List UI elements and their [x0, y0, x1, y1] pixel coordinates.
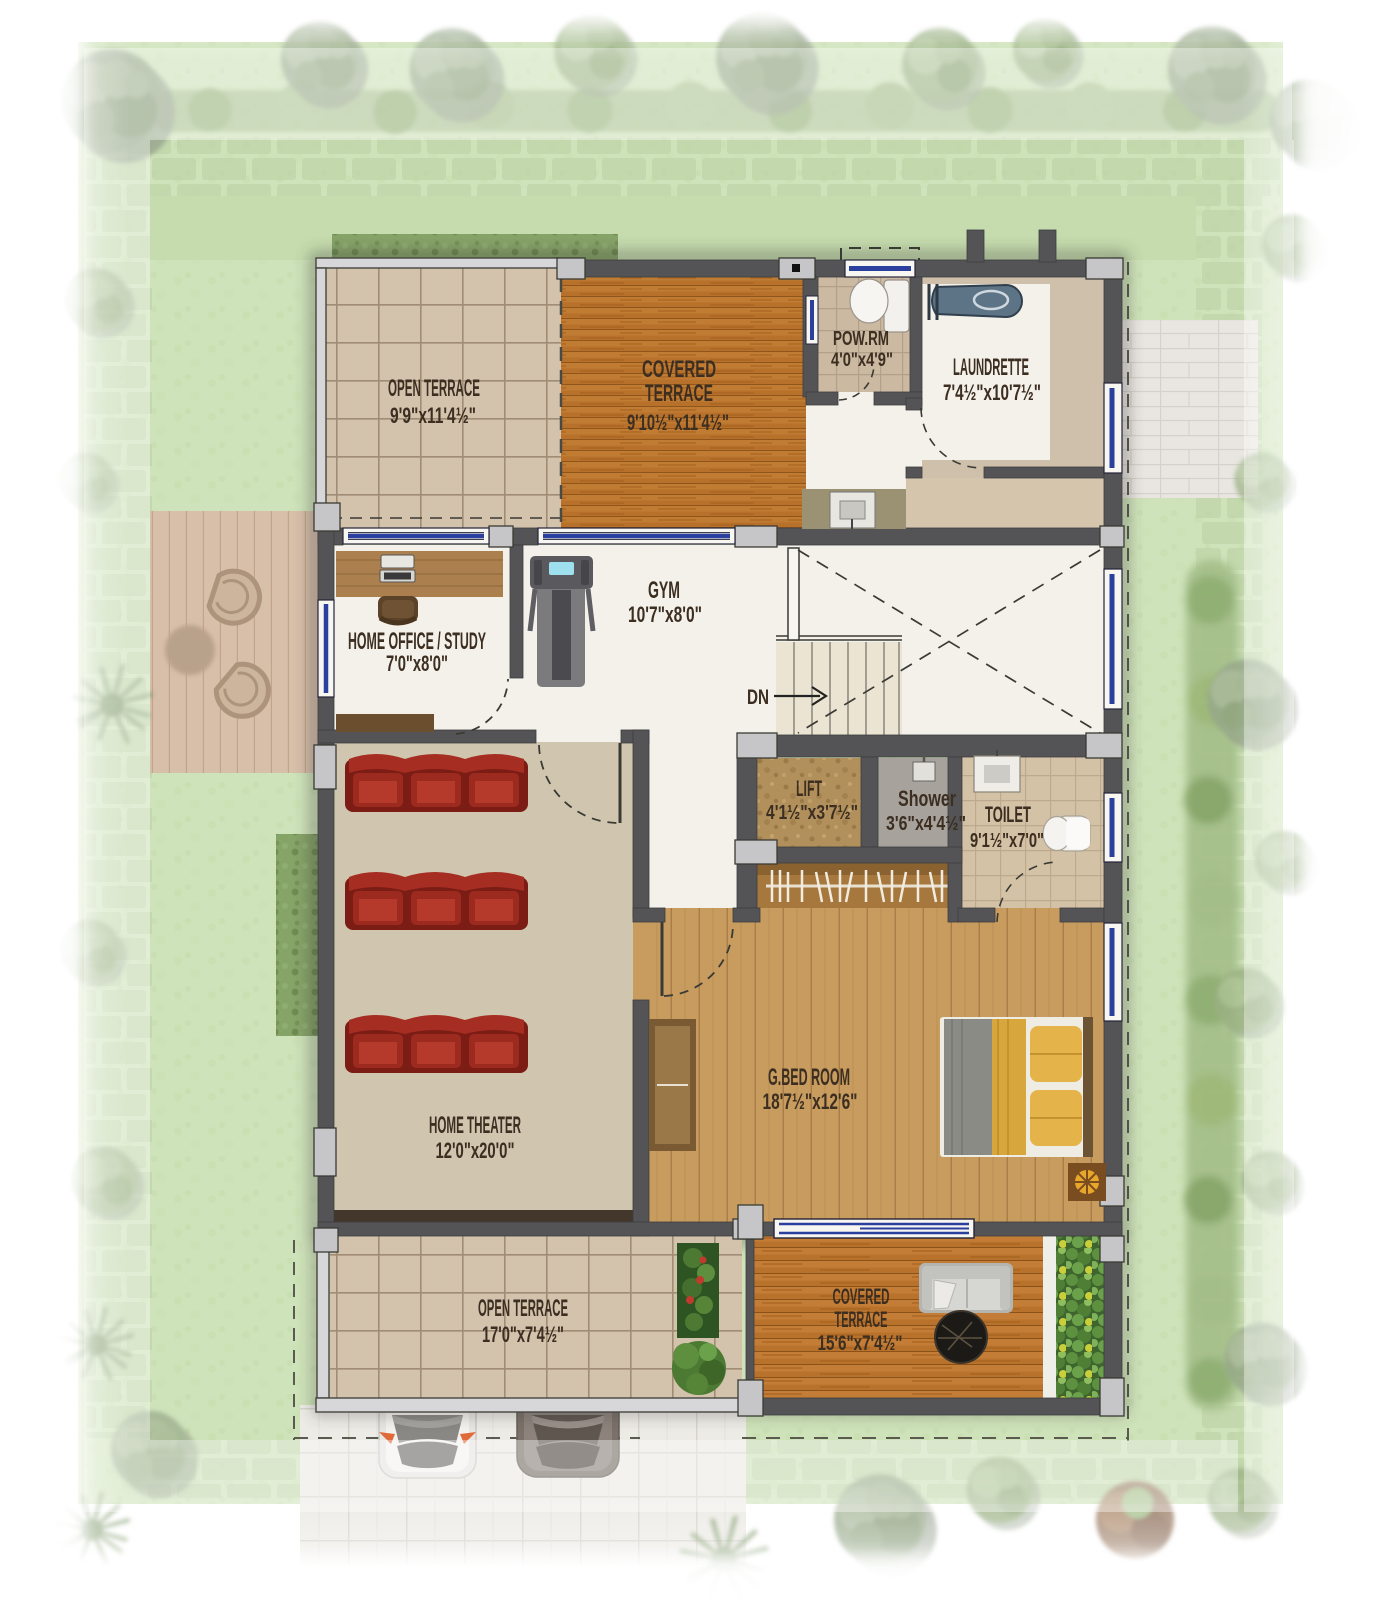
- svg-text:TERRACE: TERRACE: [835, 1307, 888, 1332]
- svg-text:HOME THEATER: HOME THEATER: [429, 1112, 521, 1139]
- svg-text:GYM: GYM: [648, 577, 680, 604]
- svg-text:4'1½"x3'7½": 4'1½"x3'7½": [766, 802, 858, 824]
- svg-text:18'7½"x12'6": 18'7½"x12'6": [763, 1089, 858, 1114]
- svg-text:15'6"x7'4½": 15'6"x7'4½": [818, 1332, 903, 1355]
- svg-text:9'10½"x11'4½": 9'10½"x11'4½": [627, 410, 729, 435]
- svg-text:3'6"x4'4½": 3'6"x4'4½": [886, 813, 966, 835]
- svg-text:7'4½"x10'7½": 7'4½"x10'7½": [943, 380, 1041, 405]
- svg-text:POW.RM: POW.RM: [833, 328, 889, 350]
- svg-text:4'0"x4'9": 4'0"x4'9": [831, 350, 893, 371]
- svg-text:DN: DN: [747, 686, 769, 709]
- svg-text:9'9"x11'4½": 9'9"x11'4½": [390, 403, 476, 428]
- svg-text:Shower: Shower: [898, 786, 956, 811]
- svg-text:17'0"x7'4½": 17'0"x7'4½": [482, 1322, 564, 1347]
- svg-text:9'1½"x7'0": 9'1½"x7'0": [970, 830, 1044, 852]
- svg-text:COVERED: COVERED: [833, 1284, 890, 1309]
- svg-text:OPEN TERRACE: OPEN TERRACE: [478, 1295, 568, 1322]
- svg-text:OPEN TERRACE: OPEN TERRACE: [388, 375, 480, 402]
- svg-text:TERRACE: TERRACE: [645, 380, 713, 407]
- svg-text:COVERED: COVERED: [642, 356, 716, 383]
- svg-text:G.BED ROOM: G.BED ROOM: [768, 1064, 850, 1091]
- svg-text:LIFT: LIFT: [796, 776, 822, 801]
- svg-text:10'7"x8'0": 10'7"x8'0": [628, 602, 702, 627]
- svg-text:LAUNDRETTE: LAUNDRETTE: [953, 354, 1029, 381]
- svg-text:7'0"x8'0": 7'0"x8'0": [386, 651, 448, 676]
- svg-text:TOILET: TOILET: [985, 802, 1031, 827]
- svg-text:12'0"x20'0": 12'0"x20'0": [436, 1138, 515, 1163]
